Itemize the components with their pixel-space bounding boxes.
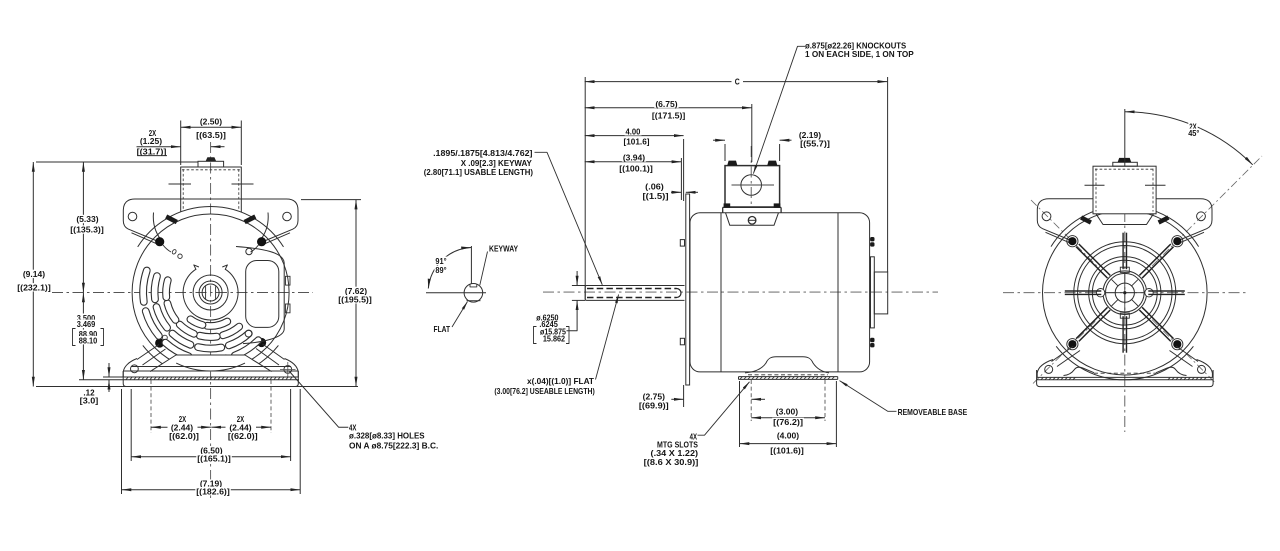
svg-text:(5.33): (5.33) — [76, 214, 98, 224]
svg-text:C: C — [735, 77, 740, 87]
svg-text:(2.80[71.1] USABLE LENGTH): (2.80[71.1] USABLE LENGTH) — [424, 167, 533, 177]
svg-text:.1895/.1875[4.813/4.762]: .1895/.1875[4.813/4.762] — [433, 148, 533, 158]
svg-text:(3.00): (3.00) — [776, 406, 798, 416]
svg-text:[(101.6)]: [(101.6)] — [770, 446, 804, 456]
svg-text:3.469: 3.469 — [77, 319, 96, 329]
svg-text:(3.94): (3.94) — [623, 153, 645, 163]
svg-text:89°: 89° — [435, 265, 447, 275]
svg-text:[101.6]: [101.6] — [624, 137, 650, 147]
svg-text:[(62.0)]: [(62.0)] — [169, 431, 199, 441]
svg-text:[(182.6)]: [(182.6)] — [196, 486, 230, 496]
svg-text:ø.328[ø8.33] HOLES: ø.328[ø8.33] HOLES — [349, 431, 425, 441]
svg-text:45°: 45° — [1188, 128, 1200, 138]
svg-text:(4.00): (4.00) — [777, 431, 799, 441]
svg-text:[(62.0)]: [(62.0)] — [228, 431, 258, 441]
svg-text:88.10: 88.10 — [79, 335, 98, 345]
svg-text:1 ON EACH SIDE, 1 ON TOP: 1 ON EACH SIDE, 1 ON TOP — [805, 49, 914, 59]
svg-text:[(8.6 X 30.9)]: [(8.6 X 30.9)] — [644, 457, 699, 467]
svg-text:(2.50): (2.50) — [200, 116, 222, 126]
svg-text:[(76.2)]: [(76.2)] — [773, 417, 803, 427]
svg-text:ON A ø8.75[222.3] B.C.: ON A ø8.75[222.3] B.C. — [349, 440, 438, 450]
svg-text:[(171.5)]: [(171.5)] — [652, 111, 686, 121]
svg-text:(.06): (.06) — [645, 181, 664, 191]
svg-text:REMOVEABLE BASE: REMOVEABLE BASE — [898, 407, 968, 417]
svg-text:[(135.3)]: [(135.3)] — [70, 225, 104, 235]
svg-text:15.862: 15.862 — [543, 333, 565, 343]
svg-text:[(1.5)]: [(1.5)] — [643, 191, 669, 201]
svg-text:x(.04)[(1.0)] FLAT: x(.04)[(1.0)] FLAT — [527, 376, 595, 386]
svg-text:(9.14): (9.14) — [23, 269, 45, 279]
svg-text:(6.75): (6.75) — [655, 99, 677, 109]
svg-text:[3.0]: [3.0] — [80, 395, 99, 405]
svg-text:(3.00[76.2] USEABLE LENGTH): (3.00[76.2] USEABLE LENGTH) — [494, 386, 595, 396]
svg-text:(1.25): (1.25) — [140, 136, 162, 146]
svg-text:KEYWAY: KEYWAY — [489, 243, 518, 253]
svg-text:4.00: 4.00 — [626, 126, 641, 136]
svg-text:FLAT: FLAT — [434, 324, 451, 334]
svg-text:[(55.7)]: [(55.7)] — [800, 139, 830, 149]
svg-text:[(165.1)]: [(165.1)] — [197, 453, 231, 463]
svg-text:[(195.5)]: [(195.5)] — [338, 294, 372, 304]
svg-text:[(63.5)]: [(63.5)] — [196, 130, 226, 140]
svg-text:[(100.1)]: [(100.1)] — [619, 163, 653, 173]
svg-text:[(232.1)]: [(232.1)] — [17, 282, 51, 292]
svg-text:[(69.9)]: [(69.9)] — [639, 401, 669, 411]
